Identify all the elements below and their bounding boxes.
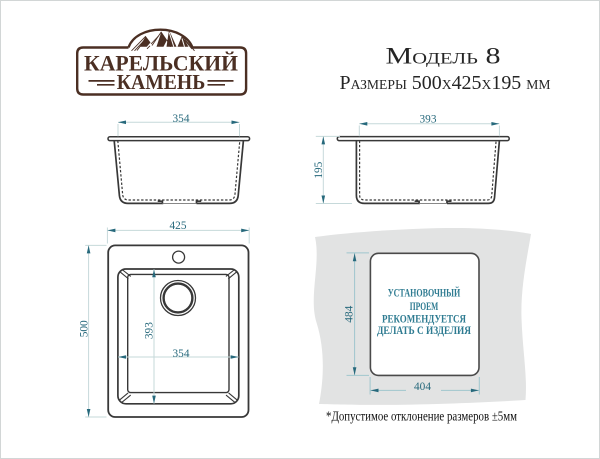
svg-text:500: 500 (79, 320, 91, 337)
svg-text:404: 404 (414, 381, 431, 393)
svg-text:393: 393 (420, 114, 437, 126)
svg-text:*Допустимое отклонение размеро: *Допустимое отклонение размеров ±5мм (326, 409, 517, 424)
svg-text:УСТАНОВОЧНЫЙ: УСТАНОВОЧНЫЙ (388, 286, 461, 300)
svg-text:ДЕЛАТЬ С ИЗДЕЛИЯ: ДЕЛАТЬ С ИЗДЕЛИЯ (377, 323, 471, 337)
svg-text:195: 195 (313, 161, 325, 178)
svg-text:425: 425 (170, 220, 187, 232)
svg-text:Модель 8: Модель 8 (386, 44, 501, 70)
svg-text:393: 393 (144, 322, 156, 339)
svg-text:КАМЕНЬ: КАМЕНЬ (117, 70, 206, 94)
svg-text:354: 354 (173, 113, 190, 125)
svg-text:Размеры 500х425х195 мм: Размеры 500х425х195 мм (340, 72, 552, 94)
svg-text:354: 354 (173, 348, 190, 360)
svg-text:484: 484 (344, 305, 356, 322)
